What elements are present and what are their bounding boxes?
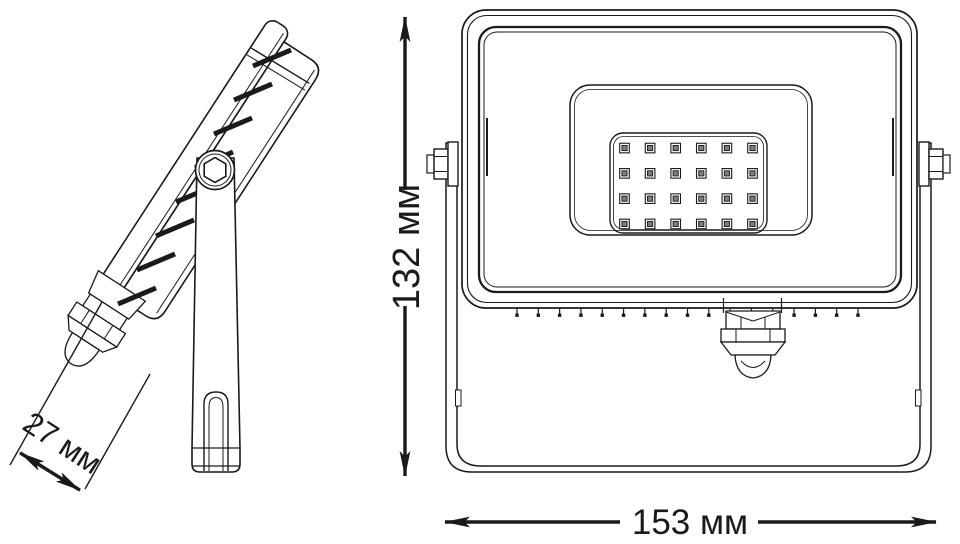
led-chip-die — [622, 221, 627, 226]
led-chip-die — [648, 145, 653, 150]
dimension-depth-label: 27 мм — [17, 405, 108, 481]
vent-tick-foot — [537, 314, 540, 317]
vent-ticks — [515, 309, 859, 317]
led-chip-die — [648, 171, 653, 176]
vent-tick-foot — [579, 314, 582, 317]
led-chip-die — [648, 221, 653, 226]
front-face-plate — [479, 27, 901, 292]
led-chip-die — [673, 221, 678, 226]
vent-tick-foot — [707, 314, 710, 317]
vent-tick-foot — [515, 314, 518, 317]
vent-tick-foot — [792, 314, 795, 317]
led-chip-die — [724, 171, 729, 176]
drawing-svg: 27 мм 132 мм 153 мм — [0, 0, 960, 544]
front-view — [427, 10, 950, 472]
led-chip-die — [699, 145, 704, 150]
led-chip-die — [673, 196, 678, 201]
led-chip-die — [750, 196, 755, 201]
led-chip-die — [622, 196, 627, 201]
mounting-bolt-left — [427, 142, 458, 186]
front-bracket-notch-right — [916, 390, 922, 406]
led-chip-die — [622, 145, 627, 150]
led-chip-die — [724, 145, 729, 150]
vent-tick-foot — [835, 314, 838, 317]
led-chip-die — [724, 221, 729, 226]
led-chip-die — [750, 221, 755, 226]
led-chip-die — [673, 171, 678, 176]
vent-tick-foot — [856, 314, 859, 317]
led-chip-die — [648, 196, 653, 201]
vent-tick-foot — [686, 314, 689, 317]
led-chip-die — [673, 145, 678, 150]
led-chip-die — [750, 171, 755, 176]
dimension-height-label: 132 мм — [386, 184, 428, 310]
mounting-bolt-right — [919, 142, 950, 186]
dimension-width-label: 153 мм — [632, 503, 748, 542]
vent-tick-foot — [558, 314, 561, 317]
led-chip-die — [750, 145, 755, 150]
vent-tick-foot — [814, 314, 817, 317]
side-view-housing — [47, 14, 331, 392]
vent-tick-foot — [664, 314, 667, 317]
vent-tick-foot — [622, 314, 625, 317]
dimension-width: 153 мм — [445, 503, 936, 542]
front-bracket-notch-left — [456, 390, 462, 406]
side-bracket-arm — [192, 158, 240, 472]
side-pivot-bolt — [196, 151, 235, 190]
led-chip-die — [699, 196, 704, 201]
vent-tick-foot — [643, 314, 646, 317]
side-view — [47, 14, 331, 472]
led-chip-die — [699, 171, 704, 176]
dimension-height: 132 мм — [386, 17, 428, 476]
floodlight-technical-drawing: 27 мм 132 мм 153 мм — [0, 0, 960, 544]
vent-tick-foot — [601, 314, 604, 317]
led-chip-die — [724, 196, 729, 201]
led-chip-die — [622, 171, 627, 176]
led-chip-die — [699, 221, 704, 226]
